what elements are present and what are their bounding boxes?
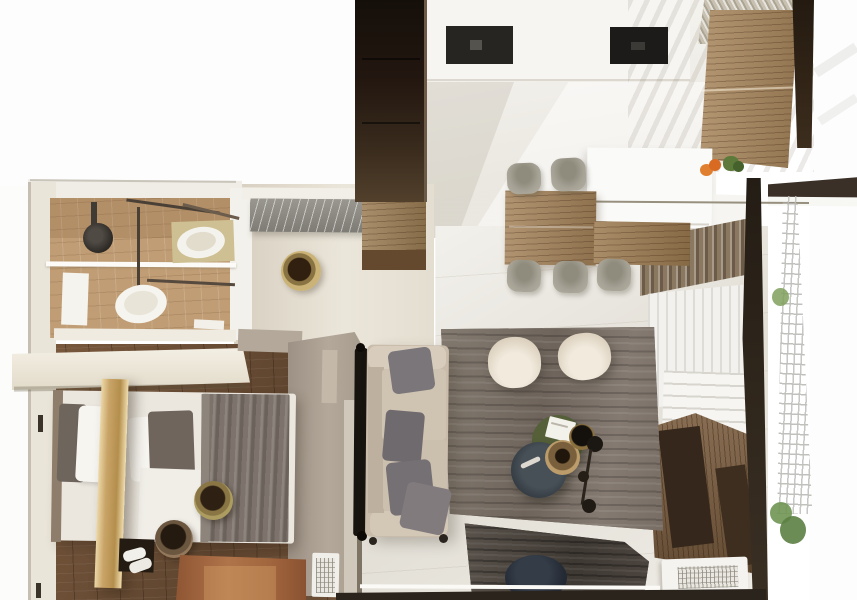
toilet-tank — [61, 273, 89, 326]
bed-blanket-gray — [200, 394, 289, 543]
divider-niche — [322, 350, 338, 403]
bedroom-pouf-brown — [155, 520, 193, 558]
bed-blanket-edge — [200, 394, 209, 542]
radiator-right-grille — [678, 565, 739, 589]
wall-handle-2 — [36, 583, 41, 598]
tv-knob-top — [356, 343, 365, 352]
apartment-floorplan-render — [0, 0, 857, 600]
dining-chair-2 — [550, 157, 587, 192]
bathroom-bottom-wall — [54, 328, 236, 342]
entry-marble-console — [250, 199, 364, 233]
veg-orange-2 — [709, 159, 721, 171]
balcony-plant-big-2 — [780, 516, 806, 544]
kitchen-faucet-detail — [470, 40, 482, 50]
outside-top-left — [0, 0, 356, 186]
dining-chair-4 — [553, 261, 589, 294]
sofa-leg-2 — [439, 534, 448, 543]
entry-round-stool — [281, 251, 321, 291]
kitchen-cooktop-detail — [631, 42, 645, 50]
floor-lamp-mid — [578, 471, 589, 482]
dining-chair-3 — [506, 259, 541, 292]
balcony-plant-small — [772, 288, 789, 306]
bedroom-pouf-gold — [194, 481, 233, 520]
wardrobe-shelf-line-1 — [362, 58, 420, 60]
kitchen-peninsula-white — [587, 147, 713, 228]
floor-lamp-base — [582, 499, 596, 513]
sofa-leg-1 — [369, 537, 377, 545]
dining-chair-1 — [506, 162, 541, 194]
sofa-pillow-2 — [382, 409, 425, 463]
shower-head — [83, 223, 113, 253]
hall-wardrobe-dark — [355, 0, 426, 202]
bathroom-pipe-2 — [137, 207, 140, 291]
wardrobe-right-edge — [424, 0, 427, 202]
sofa-pillow-4 — [399, 481, 453, 536]
wall-handle-1 — [38, 415, 43, 432]
outside-left — [0, 186, 30, 600]
veg-green-2 — [733, 161, 744, 172]
outside-right — [810, 0, 857, 600]
entry-wood-cabinet-dark — [362, 250, 426, 270]
dining-chair-5 — [596, 258, 631, 291]
sofa-pillow-1 — [387, 346, 436, 395]
rust-rug-inner — [204, 566, 276, 600]
balcony-railing — [774, 196, 814, 514]
wardrobe-shelf-line-2 — [362, 122, 420, 124]
bath-mat — [194, 319, 224, 330]
entry-wood-cabinet — [362, 198, 426, 256]
radiator-left-grille — [316, 558, 335, 593]
